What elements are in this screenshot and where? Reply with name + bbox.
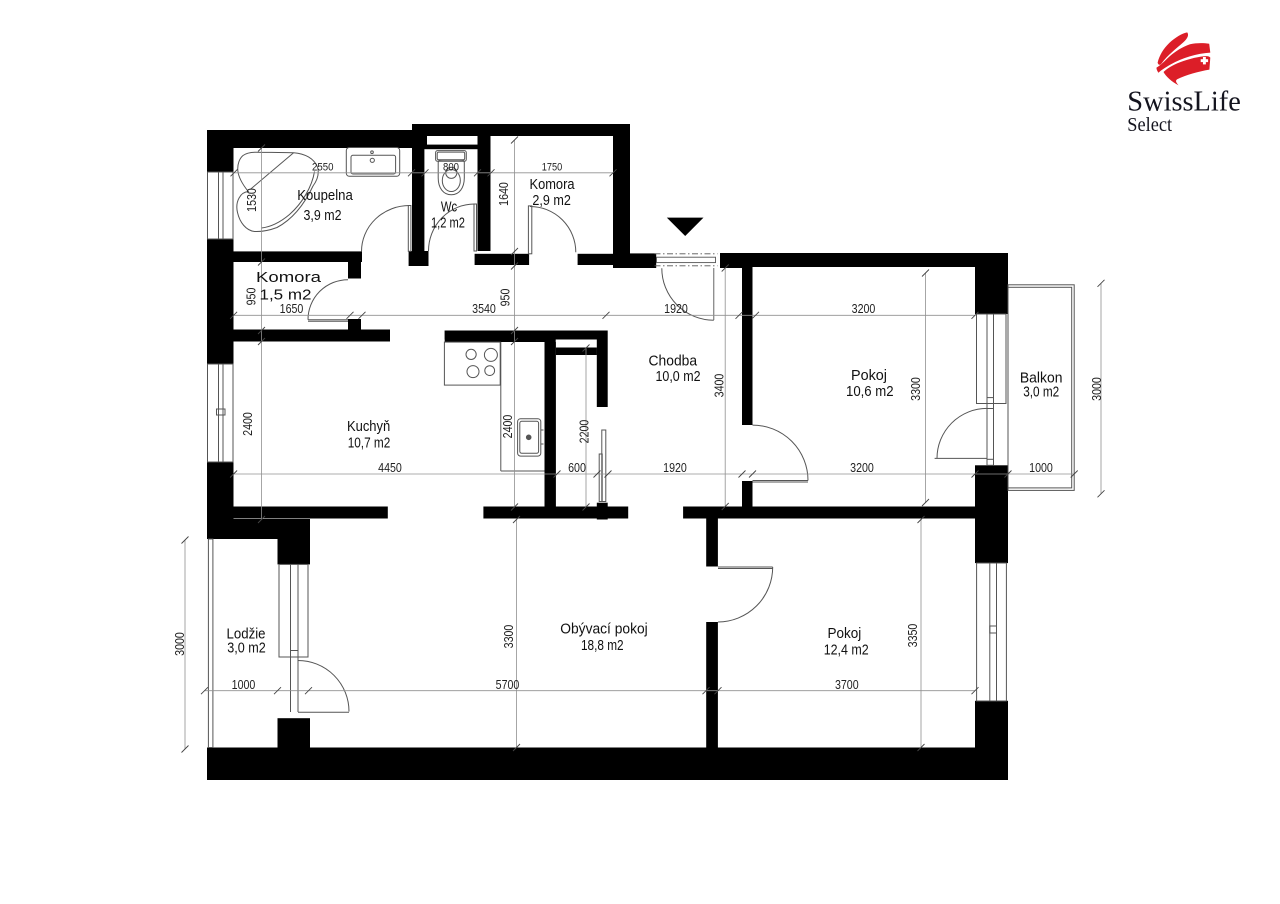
svg-text:3000: 3000 [173, 632, 187, 656]
svg-text:1000: 1000 [1029, 461, 1053, 475]
svg-text:1920: 1920 [664, 302, 688, 316]
svg-text:Chodba: Chodba [649, 353, 698, 369]
svg-text:1530: 1530 [245, 188, 259, 212]
svg-text:1640: 1640 [497, 182, 511, 206]
svg-text:800: 800 [443, 161, 459, 173]
svg-text:2550: 2550 [312, 161, 334, 173]
svg-text:600: 600 [568, 461, 586, 475]
svg-text:10,6 m2: 10,6 m2 [846, 384, 894, 400]
svg-text:3350: 3350 [906, 624, 920, 648]
svg-text:SwissLife: SwissLife [1127, 86, 1241, 118]
svg-text:3000: 3000 [1090, 377, 1104, 401]
svg-text:2400: 2400 [241, 412, 255, 436]
svg-text:3200: 3200 [850, 461, 874, 475]
svg-text:3700: 3700 [835, 678, 859, 692]
svg-text:1,5 m2: 1,5 m2 [260, 287, 312, 304]
svg-text:Wc: Wc [441, 199, 457, 215]
svg-text:950: 950 [245, 288, 259, 306]
svg-text:1000: 1000 [232, 678, 256, 692]
svg-text:Select: Select [1127, 114, 1172, 136]
svg-text:12,4 m2: 12,4 m2 [824, 642, 869, 658]
svg-text:10,7 m2: 10,7 m2 [348, 436, 391, 452]
svg-text:1650: 1650 [280, 302, 304, 316]
svg-text:Kuchyň: Kuchyň [347, 419, 390, 435]
svg-text:Pokoj: Pokoj [828, 626, 862, 642]
svg-text:950: 950 [499, 289, 513, 307]
svg-text:Obývací pokoj: Obývací pokoj [560, 622, 648, 638]
svg-text:Komora: Komora [530, 177, 576, 193]
svg-text:3540: 3540 [472, 302, 496, 316]
svg-text:3300: 3300 [502, 625, 516, 649]
svg-text:Pokoj: Pokoj [851, 368, 887, 384]
svg-text:1920: 1920 [663, 461, 687, 475]
svg-text:2200: 2200 [578, 420, 592, 444]
svg-text:4450: 4450 [378, 461, 402, 475]
svg-text:3,0 m2: 3,0 m2 [1023, 384, 1059, 400]
svg-text:Komora: Komora [256, 269, 322, 286]
svg-text:3400: 3400 [713, 374, 727, 398]
svg-text:2400: 2400 [501, 415, 515, 439]
svg-text:5700: 5700 [496, 678, 520, 692]
svg-text:3300: 3300 [909, 377, 923, 401]
svg-text:18,8 m2: 18,8 m2 [581, 638, 624, 654]
svg-text:3200: 3200 [852, 302, 876, 316]
svg-text:10,0 m2: 10,0 m2 [656, 369, 701, 385]
svg-text:1750: 1750 [542, 161, 563, 173]
svg-text:3,0 m2: 3,0 m2 [227, 641, 266, 657]
svg-text:1,2 m2: 1,2 m2 [431, 216, 465, 232]
svg-text:Koupelna: Koupelna [297, 188, 353, 204]
svg-text:2,9 m2: 2,9 m2 [532, 193, 571, 209]
svg-text:3,9 m2: 3,9 m2 [304, 208, 342, 224]
